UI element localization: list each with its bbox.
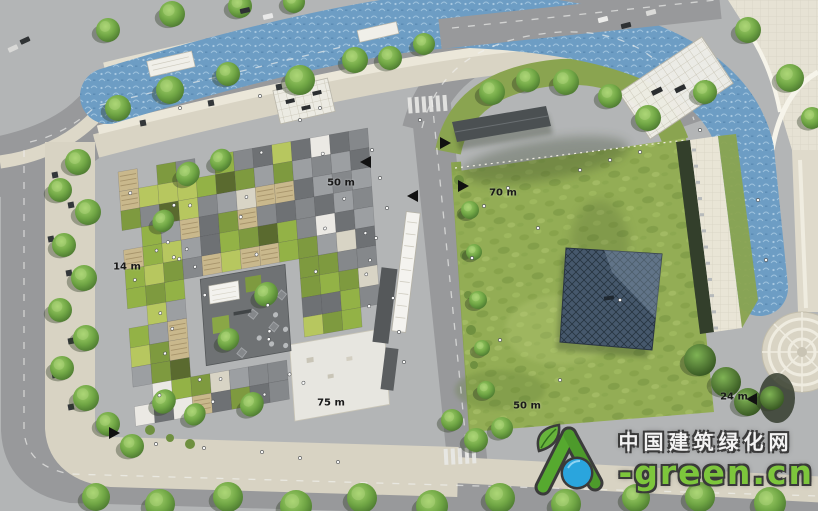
plaza-tile — [182, 256, 203, 279]
hedge-seat — [714, 327, 718, 330]
tree-highlight — [69, 152, 81, 164]
plaza-tile — [143, 243, 164, 266]
plaza-tile — [221, 249, 242, 272]
person-dot — [298, 456, 301, 459]
plaza-tile — [196, 175, 217, 198]
person-dot — [178, 106, 181, 109]
plaza-tile — [335, 210, 356, 233]
plaza-tile — [199, 214, 220, 237]
plaza-tile — [210, 370, 231, 393]
tree-highlight — [100, 415, 111, 426]
plaza-tile — [296, 216, 317, 239]
shrub — [166, 434, 174, 442]
person-dot — [185, 247, 188, 251]
tree-highlight — [804, 110, 814, 120]
plaza-tile — [139, 185, 160, 208]
person-dot — [374, 236, 377, 239]
tree-highlight — [79, 202, 91, 214]
tree-highlight — [160, 80, 173, 93]
plaza-tile — [166, 299, 187, 322]
person-dot — [536, 226, 539, 229]
plaza-tile — [355, 226, 376, 249]
dimension-label: 14 m — [113, 262, 141, 273]
tree-highlight — [476, 342, 483, 349]
plaza-tile — [339, 268, 360, 291]
dimension-label: 50 m — [327, 178, 355, 189]
tree-highlight — [602, 87, 613, 98]
plaza-tile — [236, 187, 257, 210]
plaza-tile — [342, 307, 363, 330]
tree-highlight — [218, 486, 232, 500]
person-dot — [764, 258, 767, 261]
person-dot — [378, 176, 381, 179]
person-dot — [219, 377, 222, 381]
watermark-domain: -green.cn — [619, 453, 814, 492]
person-dot — [260, 151, 263, 155]
a-leaf-globe-logo-icon — [527, 421, 619, 497]
person-dot — [365, 273, 368, 277]
plaza-tile — [348, 128, 369, 151]
plaza-tile — [333, 190, 354, 213]
plaza-tile — [359, 284, 380, 307]
person-dot — [258, 94, 261, 97]
person-dot — [364, 231, 367, 235]
plaza-tile — [303, 314, 324, 337]
masterplan-rendering: 50 m 14 m 75 m 70 m 50 m 24 m 中国建筑绿化网 -g… — [0, 0, 818, 511]
plaza-tile — [269, 380, 290, 403]
person-dot — [558, 378, 561, 381]
tree-highlight — [780, 68, 793, 81]
person-dot — [402, 360, 405, 363]
plaza-tile — [353, 187, 374, 210]
tree-highlight — [52, 301, 63, 312]
plaza-tile — [217, 191, 238, 214]
person-dot — [498, 338, 501, 341]
watermark-site-name: 中国建筑绿化网 — [619, 426, 794, 455]
shrub — [470, 361, 478, 369]
plaza-tile — [358, 265, 379, 288]
person-dot — [370, 148, 373, 151]
hedge-seat — [702, 229, 706, 232]
tree-highlight — [77, 388, 89, 400]
person-dot — [171, 327, 174, 331]
plaza-tile — [292, 158, 313, 181]
person-dot — [578, 168, 581, 171]
plaza-tile — [248, 363, 269, 386]
person-dot — [418, 118, 421, 121]
dimension-label: 70 m — [489, 188, 517, 199]
plaza-tile — [273, 161, 294, 184]
plaza-tile — [354, 206, 375, 229]
tree-highlight — [382, 49, 393, 60]
plaza-tile — [258, 223, 279, 246]
person-dot — [397, 330, 400, 333]
plaza-tile — [310, 135, 331, 158]
hedge-seat — [700, 213, 704, 216]
plaza-tile — [278, 239, 299, 262]
plaza-tile — [126, 286, 147, 309]
plaza-tile — [200, 233, 221, 256]
plaza-tile — [181, 237, 202, 260]
plaza-tile — [218, 210, 239, 233]
plaza-tile — [320, 272, 341, 295]
plaza-tile — [165, 279, 186, 302]
person-dot — [618, 298, 621, 301]
plaza-tile — [314, 193, 335, 216]
person-dot — [698, 128, 701, 131]
plaza-tile — [337, 249, 358, 272]
plaza-tile — [298, 236, 319, 259]
dimension-label: 50 m — [513, 401, 541, 412]
tree-highlight — [464, 203, 472, 211]
tree-highlight — [639, 108, 651, 120]
planter-bench — [208, 100, 215, 107]
person-dot — [298, 118, 301, 121]
plaza-tile — [252, 145, 273, 168]
person-dot — [608, 158, 611, 161]
plaza-tile — [233, 148, 254, 171]
hedge-seat — [704, 246, 708, 249]
tree-canopy — [760, 386, 784, 410]
plaza-tile — [163, 260, 184, 283]
plaza-tile — [321, 291, 342, 314]
shrub — [466, 325, 476, 335]
person-dot — [756, 198, 759, 201]
person-dot — [391, 296, 394, 299]
tree-highlight — [100, 21, 111, 32]
tree-highlight — [468, 431, 479, 442]
person-dot — [202, 446, 205, 449]
plaza-tile — [178, 198, 199, 221]
person-dot — [336, 460, 339, 463]
person-dot — [154, 442, 157, 445]
person-dot — [260, 450, 263, 453]
plaza-tile — [150, 341, 171, 364]
tree-highlight — [739, 20, 751, 32]
plaza-tile — [132, 364, 153, 387]
hedge-seat — [712, 310, 716, 313]
hedge-seat — [708, 278, 712, 281]
tree-highlight — [421, 494, 435, 508]
person-dot — [638, 150, 641, 153]
person-dot — [318, 106, 321, 109]
plaza-tile — [121, 208, 142, 231]
plaza-tile — [329, 131, 350, 154]
plaza-tile — [219, 230, 240, 253]
plaza-tile — [291, 138, 312, 161]
tree-highlight — [109, 98, 121, 110]
planter-bench — [52, 172, 59, 179]
person-dot — [159, 311, 162, 315]
hedge-seat — [706, 262, 710, 265]
hedge-seat — [692, 149, 696, 152]
plaza-tile — [144, 263, 165, 286]
plaza-tile — [331, 151, 352, 174]
tree-highlight — [352, 487, 366, 501]
plaza-tile — [145, 283, 166, 306]
plaza-tile — [277, 220, 298, 243]
plaza-tile — [129, 325, 150, 348]
hedge-seat — [696, 181, 700, 184]
hedge-seat — [710, 294, 714, 297]
tree-highlight — [150, 493, 164, 507]
tree-highlight — [416, 36, 426, 46]
person-dot — [133, 278, 136, 282]
plaza-tile — [254, 164, 275, 187]
tree-highlight — [75, 268, 87, 280]
plaza-tile — [267, 360, 288, 383]
person-dot — [193, 265, 196, 269]
person-dot — [385, 206, 388, 209]
person-dot — [482, 204, 485, 207]
plaza-tile — [191, 374, 212, 397]
plaza-tile — [311, 154, 332, 177]
tree-highlight — [52, 181, 63, 192]
tree-highlight — [163, 4, 175, 16]
person-dot — [155, 249, 158, 253]
shrub — [185, 439, 195, 449]
plaza-center — [797, 347, 807, 357]
tree-highlight — [56, 236, 67, 247]
plaza-tile — [147, 302, 168, 325]
tree-highlight — [697, 83, 708, 94]
tree-highlight — [290, 69, 304, 83]
tree-highlight — [468, 246, 475, 253]
plaza-tile — [357, 245, 378, 268]
plaza-tile — [198, 194, 219, 217]
tree-highlight — [220, 65, 231, 76]
hedge-seat — [694, 165, 698, 168]
plaza-tile — [317, 233, 338, 256]
person-dot — [323, 227, 326, 231]
plaza-tile — [151, 361, 172, 384]
dimension-label: 24 m — [720, 392, 748, 403]
plaza-tile — [302, 295, 323, 318]
plaza-tile — [257, 204, 278, 227]
dimension-label: 75 m — [317, 398, 345, 409]
person-dot — [245, 195, 248, 199]
planter-bench — [68, 202, 75, 209]
person-dot — [470, 256, 473, 259]
plaza-tile — [229, 367, 250, 390]
tree-canopy — [684, 344, 716, 376]
plaza-tile — [336, 229, 357, 252]
plaza-tile — [239, 227, 260, 250]
gridshell-pavilion — [556, 248, 662, 358]
central-pavilion-plaza — [200, 264, 291, 365]
person-dot — [163, 352, 166, 356]
plaza-tile — [294, 177, 315, 200]
tree-highlight — [285, 494, 299, 508]
tree-highlight — [124, 437, 135, 448]
checkerboard-plaza — [118, 123, 390, 449]
person-dot — [343, 197, 346, 201]
tree-highlight — [490, 487, 504, 501]
plaza-tile — [148, 322, 169, 345]
plaza-tile — [235, 168, 256, 191]
plaza-tile — [318, 252, 339, 275]
plaza-tile — [215, 171, 236, 194]
tree-highlight — [472, 293, 480, 301]
tree-highlight — [444, 412, 454, 422]
plaza-tile — [276, 200, 297, 223]
watermark: 中国建筑绿化网 -green.cn — [527, 421, 814, 497]
tree-highlight — [520, 71, 531, 82]
person-dot — [263, 393, 266, 397]
tree-highlight — [483, 82, 495, 94]
plaza-tile — [170, 357, 191, 380]
tree-highlight — [346, 50, 358, 62]
tree-highlight — [77, 328, 89, 340]
tree-highlight — [86, 487, 99, 500]
plaza-tile — [322, 311, 343, 334]
plaza-tile — [299, 255, 320, 278]
person-dot — [368, 258, 371, 262]
plaza-tile — [295, 197, 316, 220]
shrub — [145, 425, 155, 435]
plaza-tile — [272, 142, 293, 165]
tree-highlight — [494, 420, 504, 430]
plaza-tile — [300, 275, 321, 298]
plaza-tile — [316, 213, 337, 236]
plaza-tile — [130, 345, 151, 368]
plaza-tile — [340, 288, 361, 311]
tree-highlight — [480, 383, 488, 391]
planter-bench — [140, 120, 147, 127]
hedge-seat — [698, 197, 702, 200]
tree-highlight — [557, 72, 569, 84]
tree-highlight — [54, 359, 65, 370]
